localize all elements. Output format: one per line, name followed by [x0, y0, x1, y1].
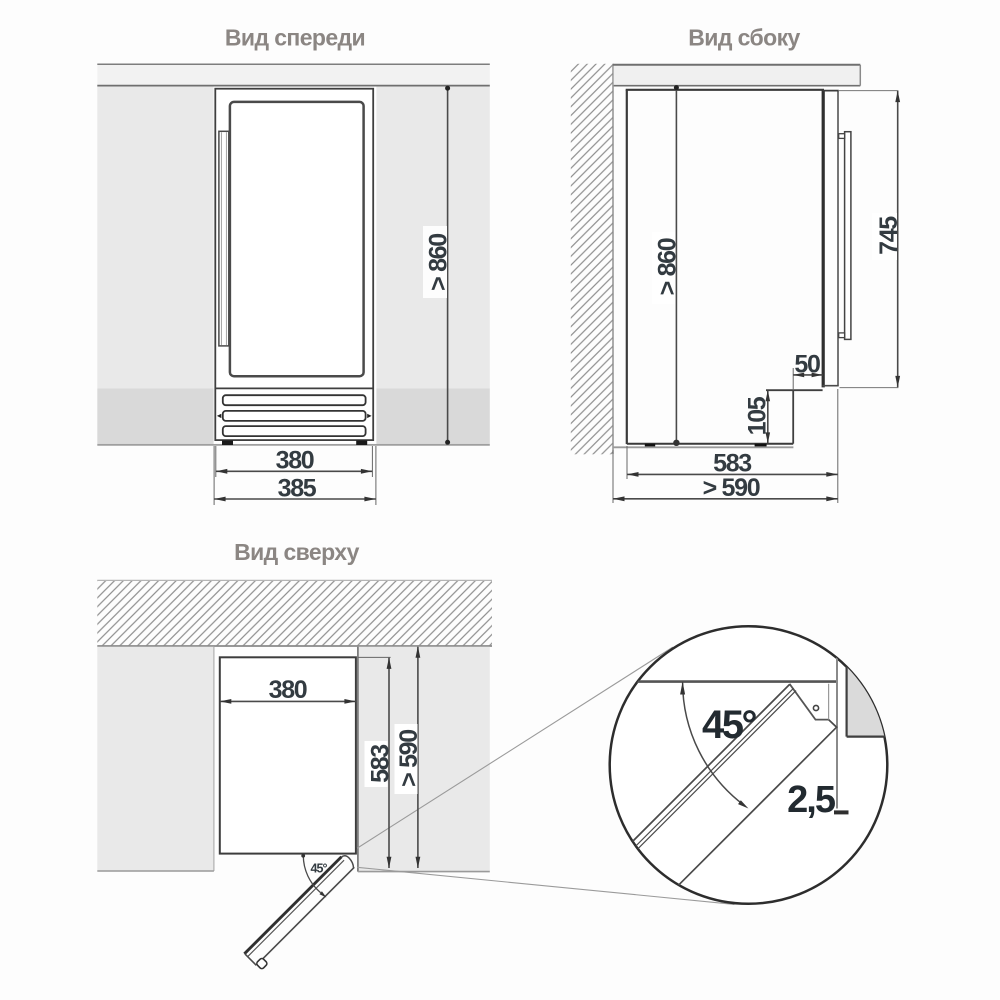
svg-text:2,5: 2,5	[787, 779, 836, 821]
svg-text:45°: 45°	[311, 861, 328, 875]
svg-text:Вид сверху: Вид сверху	[234, 539, 360, 565]
svg-text:583: 583	[367, 745, 395, 783]
svg-text:Вид спереди: Вид спереди	[225, 25, 365, 51]
svg-text:50: 50	[794, 350, 820, 378]
svg-text:745: 745	[875, 216, 903, 255]
svg-text:45°: 45°	[702, 703, 756, 747]
svg-text:380: 380	[276, 447, 314, 475]
svg-text:> 860: > 860	[425, 234, 453, 291]
svg-text:> 590: > 590	[703, 474, 760, 502]
svg-text:105: 105	[744, 396, 772, 435]
svg-text:Вид сбоку: Вид сбоку	[688, 25, 800, 51]
svg-text:380: 380	[269, 676, 307, 704]
svg-text:> 860: > 860	[654, 238, 682, 295]
svg-text:385: 385	[278, 475, 317, 503]
svg-text:> 590: > 590	[395, 730, 423, 787]
